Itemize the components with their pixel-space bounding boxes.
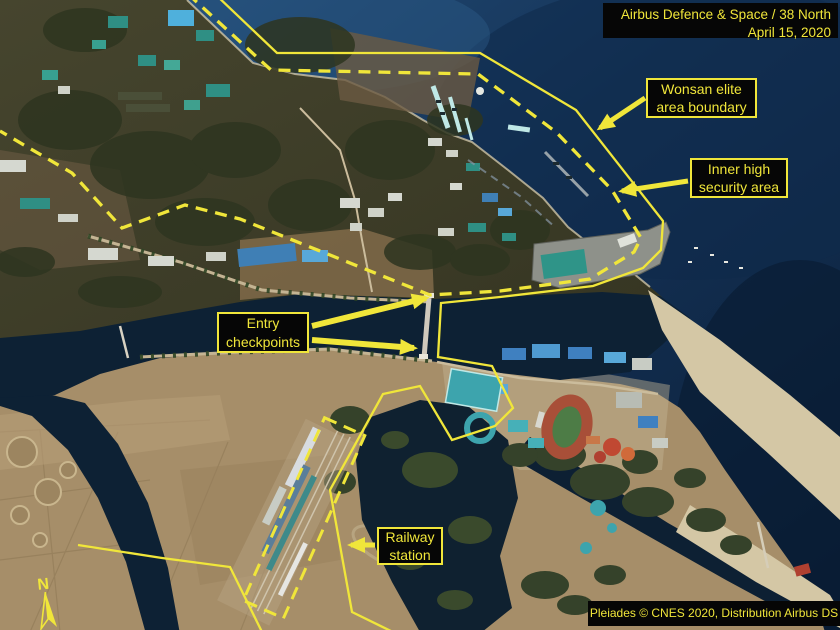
image-credit: Airbus Defence & Space / 38 North April … (603, 3, 838, 38)
label-line: station (379, 546, 441, 564)
label-line: Inner high (692, 160, 786, 178)
label-line: Wonsan elite (648, 80, 755, 98)
label-line: Railway (379, 528, 441, 546)
annotated-satellite-image: N Airbus Defence & Space / 38 North Apri… (0, 0, 840, 630)
label-wonsan-elite-area-boundary: Wonsan elite area boundary (646, 78, 757, 118)
copyright-attribution: Pleiades © CNES 2020, Distribution Airbu… (588, 601, 840, 626)
label-line: area boundary (648, 98, 755, 116)
compass-n-label: N (37, 576, 50, 594)
credit-line2: April 15, 2020 (610, 24, 831, 42)
label-entry-checkpoints: Entry checkpoints (217, 312, 309, 353)
label-line: checkpoints (219, 333, 307, 351)
credit-line1: Airbus Defence & Space / 38 North (610, 6, 831, 24)
label-line: Entry (219, 314, 307, 332)
ship (476, 87, 484, 95)
label-line: security area (692, 178, 786, 196)
label-inner-high-security-area: Inner high security area (690, 158, 788, 198)
label-railway-station: Railway station (377, 527, 443, 565)
checkpoint-south (419, 354, 428, 359)
